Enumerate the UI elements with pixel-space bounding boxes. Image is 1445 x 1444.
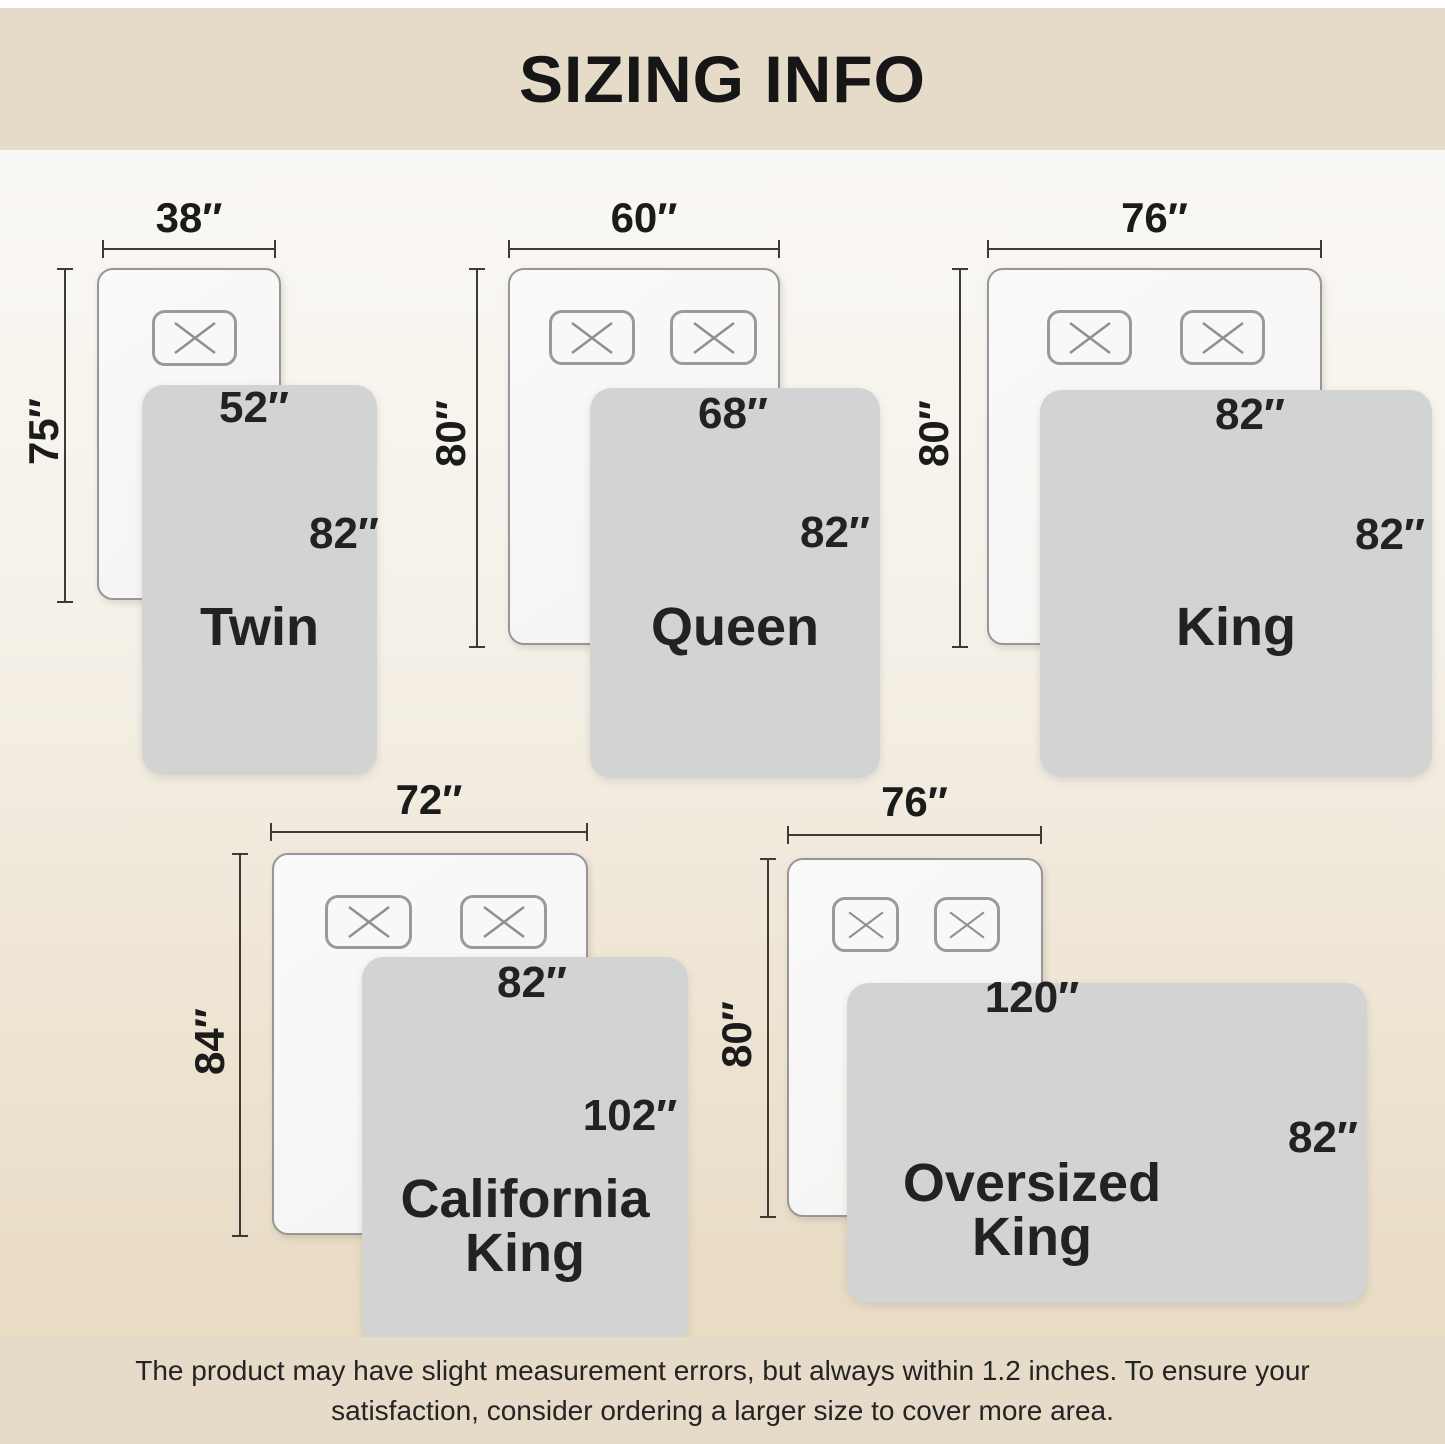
king-title: King bbox=[1040, 600, 1432, 654]
sizing-info-graphic: SIZING INFO 38″ 75″ 52″ 82″ Twin 60″ 80″ bbox=[0, 0, 1445, 1444]
king-pillow-right bbox=[1180, 310, 1265, 365]
king-width-dimension-line bbox=[987, 248, 1322, 250]
twin-blanket-width-label: 52″ bbox=[208, 386, 300, 430]
california-king-title: California King bbox=[362, 1172, 688, 1280]
twin-blanket-length-label: 82″ bbox=[298, 512, 390, 556]
twin-bed-width-label: 38″ bbox=[102, 196, 276, 240]
california-king-blanket bbox=[362, 957, 688, 1345]
king-bed-width-label: 76″ bbox=[987, 196, 1322, 240]
pillow-x-icon bbox=[1064, 318, 1116, 358]
pillow-x-icon bbox=[945, 906, 989, 944]
oversized-king-width-dimension-line bbox=[787, 834, 1042, 836]
california-king-pillow-right bbox=[460, 895, 547, 949]
queen-pillow-right bbox=[670, 310, 757, 365]
twin-title: Twin bbox=[142, 600, 377, 654]
pillow-x-icon bbox=[566, 318, 618, 358]
king-blanket bbox=[1040, 390, 1432, 777]
california-king-pillow-left bbox=[325, 895, 412, 949]
king-length-dimension-line bbox=[959, 268, 961, 648]
pillow-x-icon bbox=[844, 906, 888, 944]
california-king-blanket-length-label: 102″ bbox=[570, 1094, 690, 1138]
king-blanket-length-label: 82″ bbox=[1344, 513, 1436, 557]
disclaimer-line-1: The product may have slight measurement … bbox=[135, 1352, 1310, 1390]
queen-blanket-width-label: 68″ bbox=[687, 392, 779, 436]
queen-bed-width-label: 60″ bbox=[508, 196, 780, 240]
oversized-king-length-dimension-line bbox=[767, 858, 769, 1218]
twin-blanket bbox=[142, 385, 377, 775]
king-pillow-left bbox=[1047, 310, 1132, 365]
oversized-king-bed-width-label: 76″ bbox=[787, 780, 1042, 824]
page-title: SIZING INFO bbox=[519, 41, 926, 117]
twin-width-dimension-line bbox=[102, 248, 276, 250]
king-blanket-width-label: 82″ bbox=[1204, 393, 1296, 437]
california-king-bed-length-label: 84″ bbox=[192, 1015, 228, 1075]
oversized-king-pillow-left bbox=[832, 897, 899, 952]
pillow-x-icon bbox=[169, 318, 221, 358]
queen-length-dimension-line bbox=[476, 268, 478, 648]
queen-blanket bbox=[590, 388, 880, 778]
disclaimer-banner: The product may have slight measurement … bbox=[0, 1337, 1445, 1444]
pillow-x-icon bbox=[688, 318, 740, 358]
twin-bed-length-label: 75″ bbox=[26, 405, 62, 465]
disclaimer-line-2: satisfaction, consider ordering a larger… bbox=[331, 1392, 1114, 1430]
king-bed-length-label: 80″ bbox=[916, 407, 952, 467]
oversized-king-blanket-width-label: 120″ bbox=[962, 976, 1102, 1020]
oversized-king-title: Oversized King bbox=[867, 1156, 1197, 1264]
california-king-width-dimension-line bbox=[270, 831, 588, 833]
oversized-king-blanket-length-label: 82″ bbox=[1277, 1116, 1369, 1160]
twin-pillow bbox=[152, 310, 237, 366]
oversized-king-pillow-right bbox=[934, 897, 1000, 952]
queen-title: Queen bbox=[590, 600, 880, 654]
queen-bed-length-label: 80″ bbox=[433, 407, 469, 467]
california-king-length-dimension-line bbox=[239, 853, 241, 1237]
queen-pillow-left bbox=[549, 310, 635, 365]
queen-blanket-length-label: 82″ bbox=[789, 511, 881, 555]
header-banner: SIZING INFO bbox=[0, 8, 1445, 150]
california-king-bed-width-label: 72″ bbox=[270, 778, 588, 822]
pillow-x-icon bbox=[343, 902, 395, 942]
oversized-king-bed-length-label: 80″ bbox=[719, 1008, 755, 1068]
queen-width-dimension-line bbox=[508, 248, 780, 250]
california-king-blanket-width-label: 82″ bbox=[486, 961, 578, 1005]
pillow-x-icon bbox=[478, 902, 530, 942]
pillow-x-icon bbox=[1197, 318, 1249, 358]
